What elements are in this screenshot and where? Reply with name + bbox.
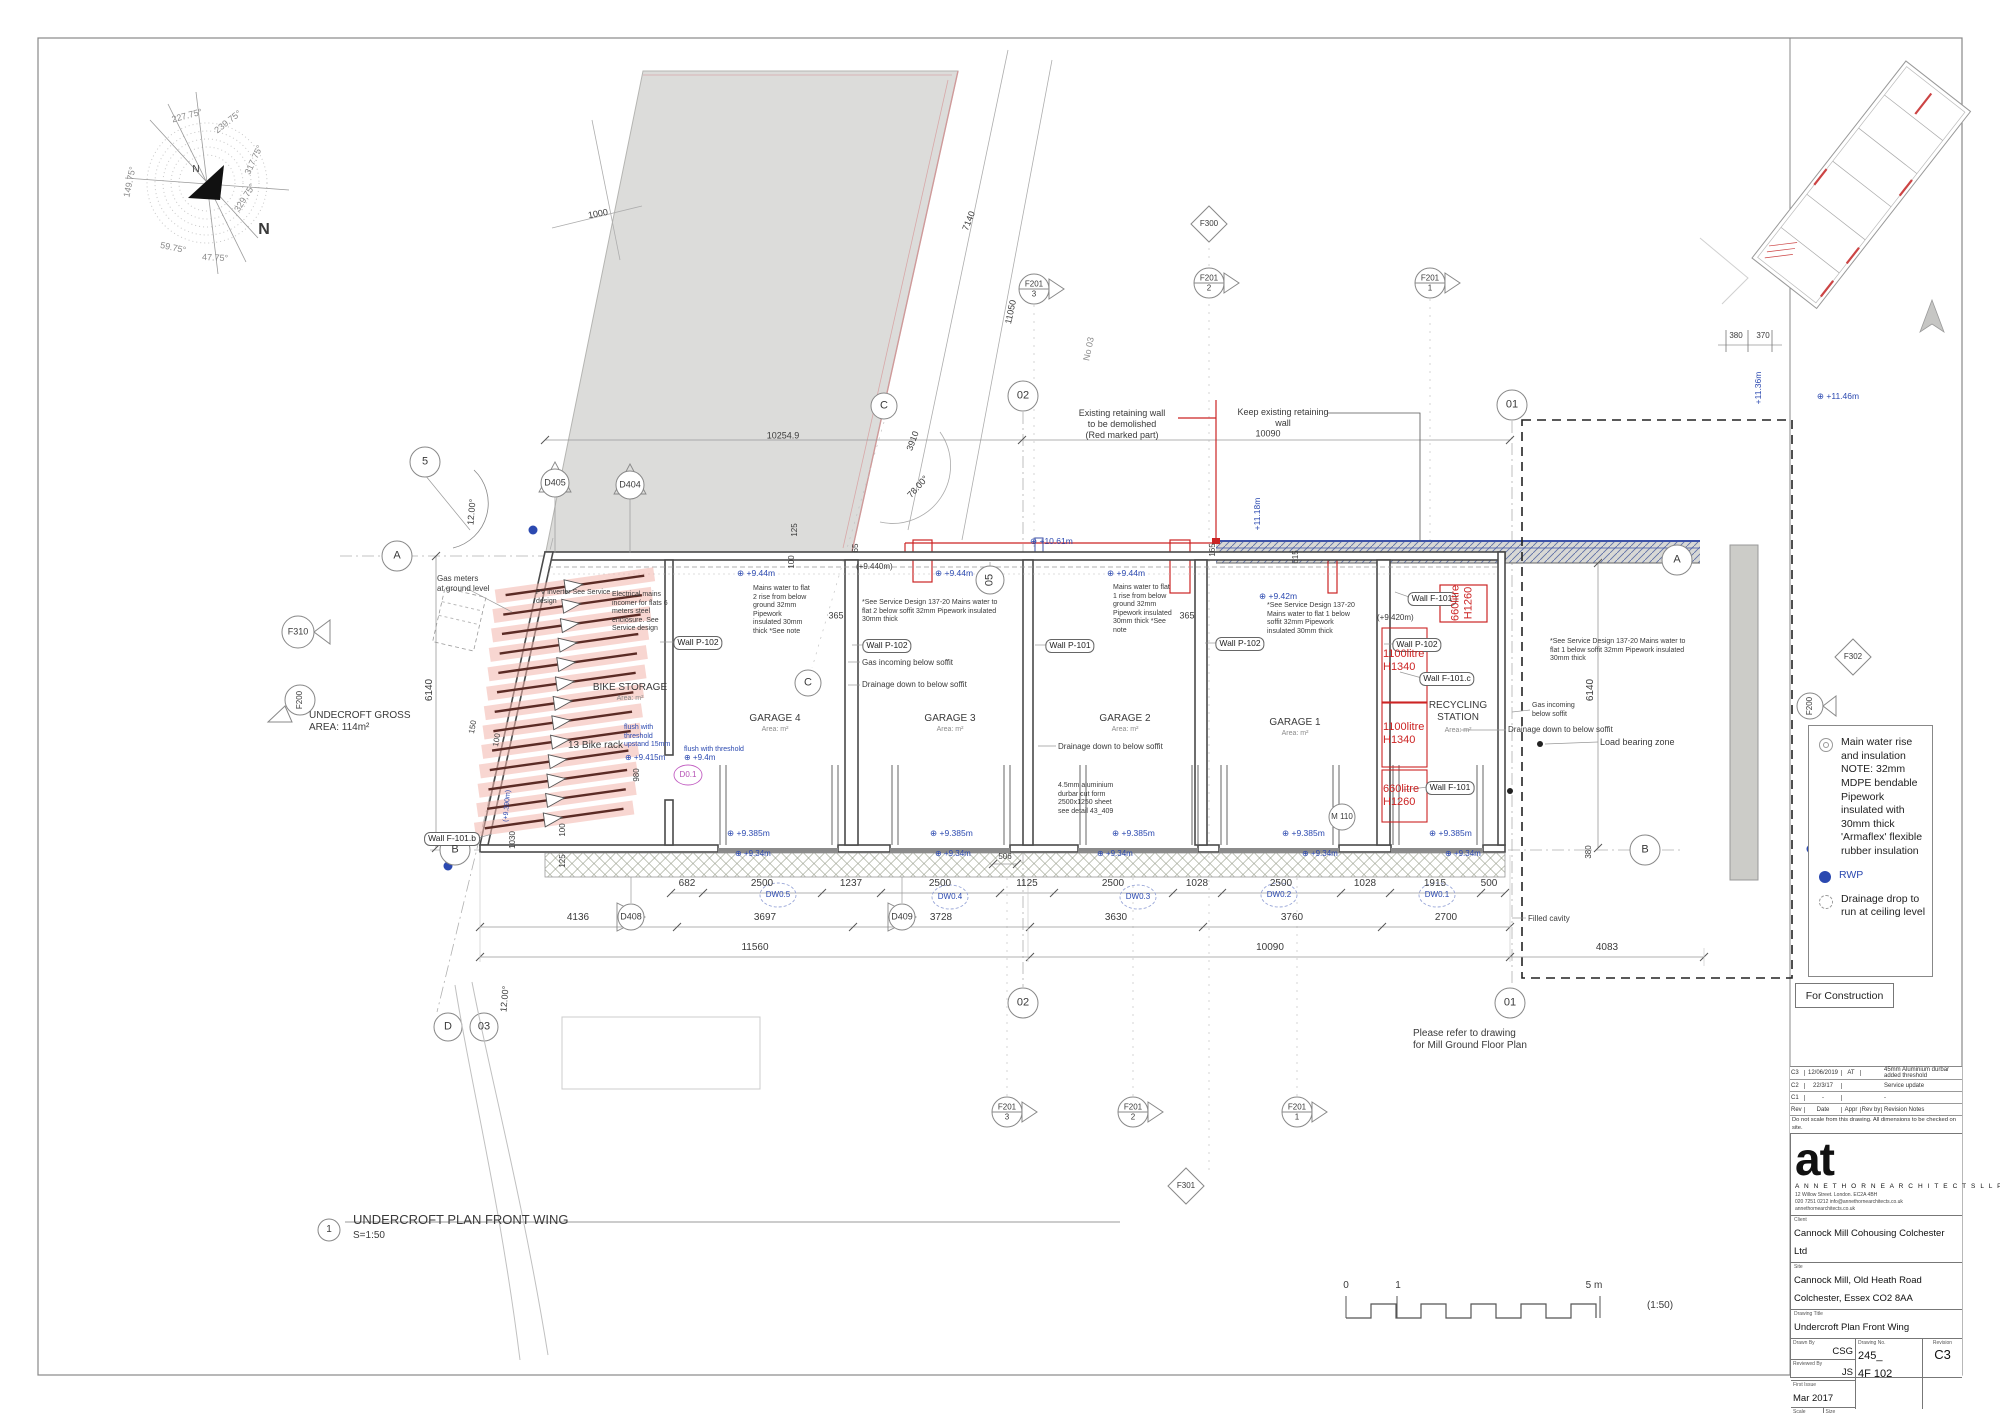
dim: 2500: [1270, 878, 1292, 890]
dim: 6140: [1585, 679, 1597, 701]
room-label: BIKE STORAGE: [593, 682, 667, 694]
dim: 3760: [1281, 912, 1303, 924]
section-marker: F201 2: [1200, 273, 1218, 293]
wall-tag: Wall F-101.c: [1419, 672, 1474, 686]
dim: 10090: [1256, 942, 1284, 954]
dim: 165: [1208, 543, 1218, 556]
section-marker: F201 3: [1025, 279, 1043, 299]
level: ⊕ +9.385m: [930, 828, 973, 838]
dim: 125: [558, 854, 568, 867]
rev-id: C1: [1790, 1095, 1805, 1101]
window-tag: DW0.4: [938, 892, 962, 902]
scalebar-label: 1: [1395, 1280, 1401, 1292]
grid-bubble: D: [444, 1020, 452, 1033]
dim: 1030: [508, 831, 518, 849]
elevation-marker: F301: [1177, 1181, 1195, 1191]
dim: 1028: [1186, 878, 1208, 890]
dim: 1125: [1016, 878, 1038, 890]
grid-bubble: 02: [1017, 996, 1029, 1009]
note-bike-rack: 13 Bike rack: [568, 740, 623, 752]
level: ⊕ +9.34m: [1445, 849, 1481, 859]
dim-angle: 12.00°: [498, 986, 511, 1013]
grid-bubble: B: [451, 843, 458, 856]
note-gross-area: UNDECROFT GROSS AREA: 114m²: [309, 710, 411, 734]
status-stamp: For Construction: [1795, 983, 1894, 1008]
note-refer: Please refer to drawing for Mill Ground …: [1413, 1028, 1527, 1052]
drawing-scale: S=1:50: [353, 1230, 385, 1242]
client-field: Client Cannock Mill Cohousing Colchester…: [1791, 1216, 1962, 1263]
grid-bubble: 5: [422, 455, 428, 468]
bin-label: 1100litre H1340: [1383, 721, 1424, 748]
dim: 100: [787, 555, 797, 568]
rev-notes: 45mm Aluminium durbar added threshold: [1882, 1067, 1962, 1079]
window-tag: DW0.5: [766, 890, 790, 900]
dim: 4083: [1596, 942, 1618, 954]
architect-logo: at: [1791, 1134, 1962, 1179]
drawn-by-field: Drawn ByCSG: [1791, 1339, 1855, 1360]
dim: 1237: [840, 878, 862, 890]
section-bubble: 05: [983, 574, 996, 586]
room-area: Area: m²: [1112, 726, 1139, 735]
window-tag: DW0.3: [1126, 892, 1150, 902]
compass-north: N: [258, 220, 270, 240]
level: ⊕ +9.34m: [1302, 849, 1338, 859]
dim: 365: [1179, 611, 1194, 622]
wall-tag: Wall F-101: [1426, 781, 1475, 795]
note: Filled cavity: [1528, 914, 1570, 924]
note: *See Service Design 137-20 Mains water t…: [1550, 638, 1685, 664]
dim: 682: [679, 878, 696, 890]
dim: 125: [790, 523, 800, 536]
grid-bubble: 01: [1506, 398, 1518, 411]
level: ⊕ +9.385m: [1282, 828, 1325, 838]
legend-item-rwp: RWP: [1819, 869, 1926, 883]
room-label: GARAGE 1: [1269, 717, 1320, 729]
bin-label: 660litre H1260: [1450, 585, 1477, 621]
size-field: SizeA1: [1823, 1408, 1856, 1413]
issue-field: First IssueMar 2017: [1791, 1381, 1855, 1408]
door-tag: D404: [619, 480, 641, 491]
level: ⊕ +9.42m: [1259, 591, 1297, 601]
level: ⊕ +9.44m: [1107, 568, 1145, 578]
dim-angle: 12.00°: [465, 499, 478, 526]
room-area: Area: m²: [937, 726, 964, 735]
level: ⊕ +9.385m: [727, 828, 770, 838]
legend-item-drainage: Drainage drop to run at ceiling level: [1819, 893, 1926, 920]
drawing-title: UNDERCROFT PLAN FRONT WING: [353, 1212, 568, 1228]
note: Mains water to flat 2 rise from below gr…: [753, 585, 810, 636]
level: ⊕ +11.46m: [1817, 391, 1859, 401]
drawing-sheet: Main water rise and insulation NOTE: 32m…: [0, 0, 2000, 1413]
grid-bubble: 02: [1017, 389, 1029, 402]
note: Electrical mains incomer for flats 6 met…: [612, 591, 668, 634]
note: Gas incoming below soffit: [1532, 702, 1575, 719]
note: flush with threshold upstand 15mm: [624, 724, 670, 750]
legend-water-rise-text: Main water rise and insulation NOTE: 32m…: [1841, 736, 1926, 859]
dim: 365: [828, 611, 843, 622]
note-demolish: Existing retaining wall to be demolished…: [1079, 408, 1166, 441]
dim: 65: [851, 544, 861, 553]
level: (+9.420m): [1377, 613, 1414, 623]
room-area: Area: m²: [617, 695, 644, 704]
legend-item-water-rise: Main water rise and insulation NOTE: 32m…: [1819, 736, 1926, 859]
section-marker: F201 1: [1421, 273, 1439, 293]
rev-notes: Service update: [1882, 1083, 1962, 1089]
scalebar-label: 5 m: [1586, 1280, 1603, 1292]
grid-bubble: 01: [1504, 996, 1516, 1009]
rev-date: 12/06/2019: [1805, 1070, 1842, 1076]
level: ⊕ +10.61m: [1030, 536, 1073, 546]
grid-bubble: B: [1641, 843, 1648, 856]
dim: 380: [1584, 845, 1594, 858]
wall-tag: Wall P-102: [862, 639, 911, 653]
rev-notes: -: [1882, 1095, 1962, 1101]
legend-rwp-text: RWP: [1839, 869, 1863, 883]
door-tag: D0.1: [680, 770, 697, 780]
drawing-no-field: Drawing No. 245_ 4F 102: [1856, 1339, 1923, 1409]
dim: 2500: [1102, 878, 1124, 890]
room-label: GARAGE 2: [1099, 713, 1150, 725]
dim: 6140: [424, 679, 436, 701]
water-rise-icon: [1819, 738, 1833, 752]
bin-label: 1100litre H1340: [1383, 648, 1424, 675]
wall-tag: Wall P-102: [673, 636, 722, 650]
door-tag: D405: [544, 478, 566, 489]
dim: 4136: [567, 912, 589, 924]
note: Gas meters at ground level: [437, 574, 489, 594]
revision-row: C3 12/06/2019 AT 45mm Aluminium durbar a…: [1790, 1067, 1962, 1080]
rev-date: -: [1805, 1095, 1842, 1101]
dim: 3630: [1105, 912, 1127, 924]
door-tag: D409: [891, 912, 913, 923]
elevation-marker: F302: [1844, 652, 1862, 662]
note-load-bearing: Load bearing zone: [1600, 737, 1675, 748]
dim: 100: [558, 823, 568, 836]
revision-table: C3 12/06/2019 AT 45mm Aluminium durbar a…: [1790, 1066, 1962, 1144]
scalebar-label: 0: [1343, 1280, 1349, 1292]
section-bubble: C: [804, 676, 812, 689]
room-label: RECYCLING STATION: [1429, 700, 1487, 724]
grid-bubble: A: [1673, 553, 1680, 566]
room-label: GARAGE 3: [924, 713, 975, 725]
site-field: Site Cannock Mill, Old Heath Road Colche…: [1791, 1263, 1962, 1310]
section-bubble: C: [880, 399, 888, 412]
note: 4.5mm aluminium durbar cut form 2500x125…: [1058, 782, 1113, 816]
grid-bubble: 03: [478, 1020, 490, 1033]
revision-note: Do not scale from this drawing. All dime…: [1790, 1116, 1962, 1133]
drawing-ref-bubble: 1: [326, 1224, 332, 1236]
level: ⊕ +9.385m: [1429, 828, 1472, 838]
note: PV inverter See Service design: [536, 589, 610, 606]
window-tag: DW0.2: [1267, 890, 1291, 900]
wall-tag: Wall P-101: [1045, 639, 1094, 653]
note-keep-wall: Keep existing retaining wall: [1237, 407, 1328, 429]
dim: 2500: [751, 878, 773, 890]
dim: 11560: [741, 942, 768, 954]
rev-id: C3: [1790, 1070, 1805, 1076]
dim: 370: [1756, 331, 1769, 341]
note: Mains water to flat 1 rise from below gr…: [1113, 584, 1172, 635]
drainage-drop-icon: [1819, 895, 1833, 909]
level: ⊕ +9.34m: [1097, 849, 1133, 859]
dim: 10090: [1255, 429, 1280, 440]
legend: Main water rise and insulation NOTE: 32m…: [1808, 725, 1933, 977]
grid-bubble: A: [393, 549, 400, 562]
bin-label: 660litre H1260: [1383, 783, 1419, 810]
note: Drainage down to below soffit: [1508, 725, 1613, 735]
dim: 980: [632, 768, 642, 781]
architect-address: 12 Willow Street. London. EC2A 4BH 020 7…: [1791, 1192, 1962, 1216]
dim: 615: [1291, 550, 1301, 563]
compass-label: 47.75°: [202, 252, 229, 264]
dim: 3728: [930, 912, 952, 924]
rwp-icon: [1819, 871, 1831, 883]
level: (+9.440m): [856, 562, 893, 572]
dim: 1915: [1424, 878, 1446, 890]
level: ⊕ +9.34m: [735, 849, 771, 859]
level: ⊕ +9.44m: [935, 568, 973, 578]
dim: 2700: [1435, 912, 1457, 924]
rev-id: C2: [1790, 1083, 1805, 1089]
revision-row: C1 - -: [1790, 1092, 1962, 1104]
elevation-marker: F310: [288, 627, 309, 638]
level: +11.36m: [1753, 372, 1763, 405]
dim: 10254.9: [767, 431, 800, 442]
section-marker: F201 3: [998, 1102, 1016, 1122]
level: ⊕ +9.34m: [935, 849, 971, 859]
note: flush with threshold: [684, 746, 744, 755]
compass-north-small: N: [192, 164, 199, 176]
note: *See Service Design 137-20 Mains water t…: [1267, 602, 1355, 636]
door-tag: D408: [620, 912, 642, 923]
level: ⊕ +9.415m: [625, 753, 665, 763]
dim: 1028: [1354, 878, 1376, 890]
note: Drainage down to below soffit: [1058, 742, 1163, 752]
level: +11.18m: [1252, 498, 1262, 531]
room-label: GARAGE 4: [749, 713, 800, 725]
dim: 380: [1729, 331, 1742, 341]
drawing-title-field: Drawing Title Undercroft Plan Front Wing: [1791, 1310, 1962, 1339]
elevation-marker: F200: [1805, 697, 1815, 715]
revision-field: Revision C3: [1923, 1339, 1962, 1409]
rev-date: 22/3/17: [1805, 1083, 1842, 1089]
dim: 500: [1481, 878, 1498, 890]
revision-header: Rev Date Appr Rev by Revision Notes: [1790, 1104, 1962, 1116]
title-block-grid: Drawn ByCSG Reviewed ByJS First IssueMar…: [1791, 1339, 1962, 1409]
wall-tag: Wall P-102: [1215, 637, 1264, 651]
window-tag: DW0.1: [1425, 890, 1449, 900]
note: *See Service Design 137-20 Mains water t…: [862, 599, 997, 625]
reviewed-by-field: Reviewed ByJS: [1791, 1360, 1855, 1381]
section-marker: F201 1: [1288, 1102, 1306, 1122]
dim: 3697: [754, 912, 776, 924]
note: Drainage down to below soffit: [862, 680, 967, 690]
dim: 2500: [929, 878, 951, 890]
title-block: at A N N E T H O R N E A R C H I T E C T…: [1790, 1133, 1962, 1378]
room-area: Area: m²: [762, 726, 789, 735]
note: Gas incoming below soffit: [862, 658, 953, 668]
scale-field: Scale1:50: [1791, 1408, 1823, 1413]
rev-appr: AT: [1842, 1070, 1861, 1076]
scale-note: (1:50): [1647, 1300, 1673, 1312]
room-area: Area: m²: [1282, 730, 1309, 739]
elevation-marker: F200: [295, 691, 305, 709]
ref-bubble: M 110: [1331, 812, 1353, 822]
revision-row: C2 22/3/17 Service update: [1790, 1080, 1962, 1092]
legend-drainage-text: Drainage drop to run at ceiling level: [1841, 893, 1926, 920]
room-area: Area: m²: [1445, 727, 1472, 736]
section-marker: F201 2: [1124, 1102, 1142, 1122]
elevation-marker: F300: [1200, 219, 1218, 229]
dim: 506: [998, 852, 1011, 862]
level: ⊕ +9.44m: [737, 568, 775, 578]
level: ⊕ +9.385m: [1112, 828, 1155, 838]
